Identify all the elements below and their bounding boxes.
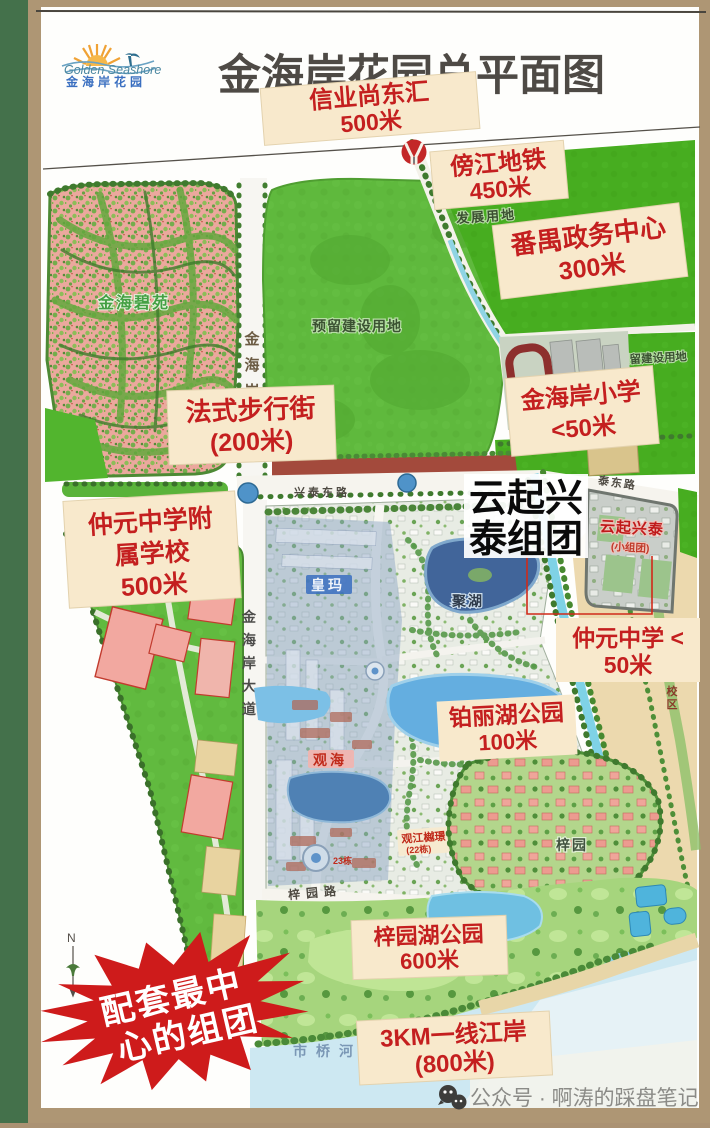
- svg-text:<50米: <50米: [550, 412, 617, 445]
- svg-text:金海岸花园: 金海岸花园: [65, 74, 146, 89]
- svg-text:(22栋): (22栋): [406, 843, 432, 856]
- svg-text:公众号 · 啊涛的踩盘笔记: 公众号 · 啊涛的踩盘笔记: [470, 1087, 699, 1110]
- svg-text:属学校: 属学校: [114, 537, 192, 571]
- svg-text:600米: 600米: [400, 947, 461, 974]
- svg-text:500米: 500米: [339, 107, 403, 138]
- svg-text:法式步行街: 法式步行街: [185, 393, 316, 428]
- svg-text:450米: 450米: [469, 173, 533, 204]
- svg-text:(小组团): (小组团): [611, 540, 650, 555]
- svg-text:梓园: 梓园: [556, 837, 588, 853]
- svg-text:梓园湖公园: 梓园湖公园: [373, 921, 484, 950]
- svg-text:100米: 100米: [478, 727, 539, 755]
- svg-text:市桥河: 市桥河: [293, 1043, 362, 1059]
- svg-text:(200米): (200米): [209, 427, 293, 458]
- svg-text:观海: 观海: [313, 752, 347, 768]
- svg-text:皇玛: 皇玛: [311, 577, 345, 593]
- svg-text:预留建设用地: 预留建设用地: [312, 318, 402, 334]
- svg-text:23栋: 23栋: [333, 855, 352, 866]
- svg-text:(800米): (800米): [414, 1048, 495, 1079]
- svg-text:金海碧苑: 金海碧苑: [97, 293, 170, 312]
- svg-text:云起兴泰: 云起兴泰: [600, 517, 665, 538]
- svg-text:兴泰东路: 兴泰东路: [294, 485, 350, 499]
- svg-text:云起兴: 云起兴: [469, 478, 583, 520]
- svg-text:泰组团: 泰组团: [469, 519, 583, 561]
- svg-text:N: N: [67, 931, 76, 945]
- svg-text:聚湖: 聚湖: [451, 593, 484, 609]
- svg-text:500米: 500米: [120, 570, 189, 602]
- svg-text:50米: 50米: [604, 652, 654, 678]
- svg-text:仲元中学 <: 仲元中学 <: [572, 625, 684, 651]
